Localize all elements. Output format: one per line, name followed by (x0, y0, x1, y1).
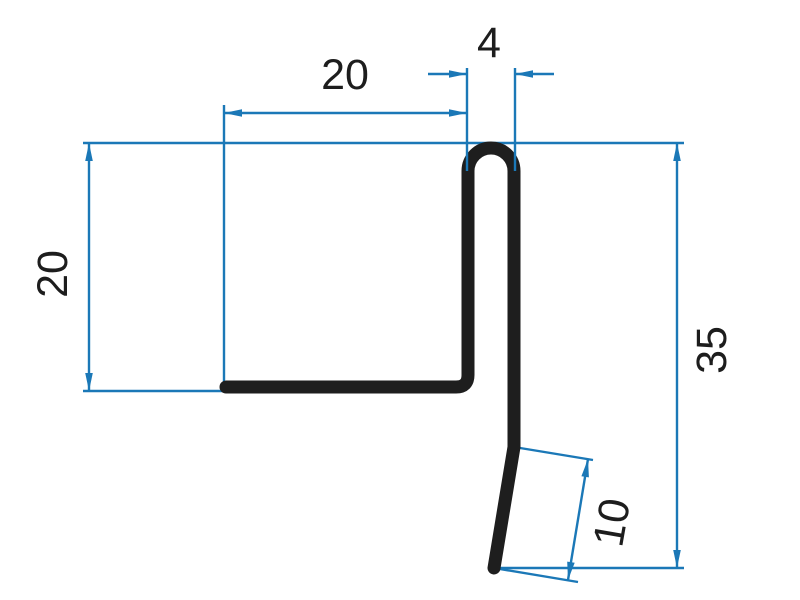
arrow-up-icon (85, 143, 93, 161)
profile-drawing-svg: 20 4 20 35 10 (0, 0, 800, 600)
arrow-up-icon (673, 143, 681, 161)
profile-outline (226, 148, 514, 568)
technical-drawing-canvas: 20 4 20 35 10 (0, 0, 800, 600)
dim-label-hem-width: 4 (477, 19, 501, 67)
arrow-left-icon (515, 70, 533, 78)
extension-line-drip-bottom (494, 568, 578, 582)
arrow-left-icon (224, 109, 242, 117)
arrow-right-icon (449, 109, 467, 117)
extension-line-drip-top (514, 447, 593, 460)
dim-label-drip-length: 10 (584, 495, 640, 550)
dim-label-left-height: 20 (29, 250, 77, 298)
dim-label-total-height: 35 (688, 326, 736, 374)
arrow-oblique-up-icon (581, 459, 589, 477)
dim-label-top-width: 20 (321, 51, 369, 99)
arrow-right-icon (449, 70, 467, 78)
dimension-labels: 20 4 20 35 10 (29, 19, 736, 550)
arrow-oblique-down-icon (567, 562, 575, 580)
arrow-down-icon (673, 550, 681, 568)
arrow-down-icon (85, 373, 93, 391)
dim-line-drip-length (568, 459, 588, 580)
